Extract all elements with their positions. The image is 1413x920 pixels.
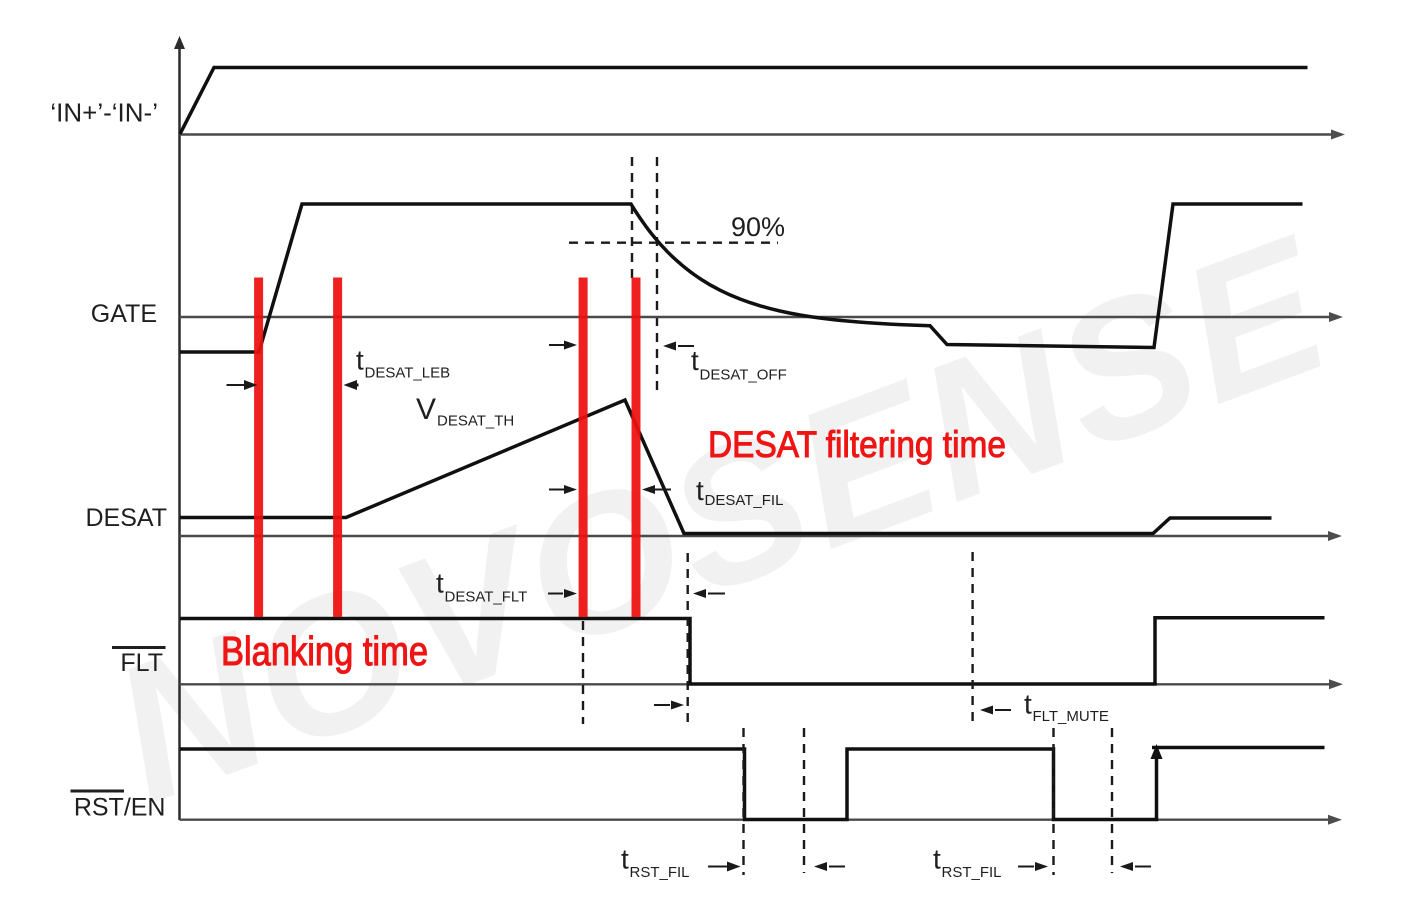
svg-text:RST_FIL: RST_FIL (630, 864, 690, 881)
svg-text:DESAT_FIL: DESAT_FIL (705, 492, 784, 509)
svg-text:t: t (621, 844, 629, 875)
svg-text:DESAT filtering time: DESAT filtering time (708, 423, 1006, 465)
svg-text:t: t (436, 568, 444, 599)
svg-text:t: t (933, 844, 941, 875)
svg-text:t: t (696, 475, 704, 506)
svg-text:RST/EN: RST/EN (74, 794, 166, 822)
svg-text:t: t (1024, 689, 1032, 720)
svg-text:DESAT: DESAT (86, 504, 168, 532)
svg-text:FLT_MUTE: FLT_MUTE (1033, 708, 1109, 725)
svg-text:‘IN+’-‘IN-’: ‘IN+’-‘IN-’ (50, 98, 158, 128)
svg-text:Blanking time: Blanking time (221, 628, 428, 674)
svg-text:GATE: GATE (91, 300, 157, 328)
svg-text:FLT: FLT (120, 649, 163, 677)
svg-text:DESAT_LEB: DESAT_LEB (365, 365, 451, 382)
svg-text:DESAT_OFF: DESAT_OFF (700, 367, 787, 384)
svg-text:t: t (691, 345, 699, 376)
svg-text:t: t (356, 345, 364, 376)
svg-text:V: V (416, 393, 436, 426)
svg-text:DESAT_TH: DESAT_TH (437, 413, 514, 430)
svg-text:90%: 90% (731, 212, 785, 242)
svg-text:RST_FIL: RST_FIL (942, 864, 1002, 881)
svg-text:DESAT_FLT: DESAT_FLT (445, 589, 528, 606)
